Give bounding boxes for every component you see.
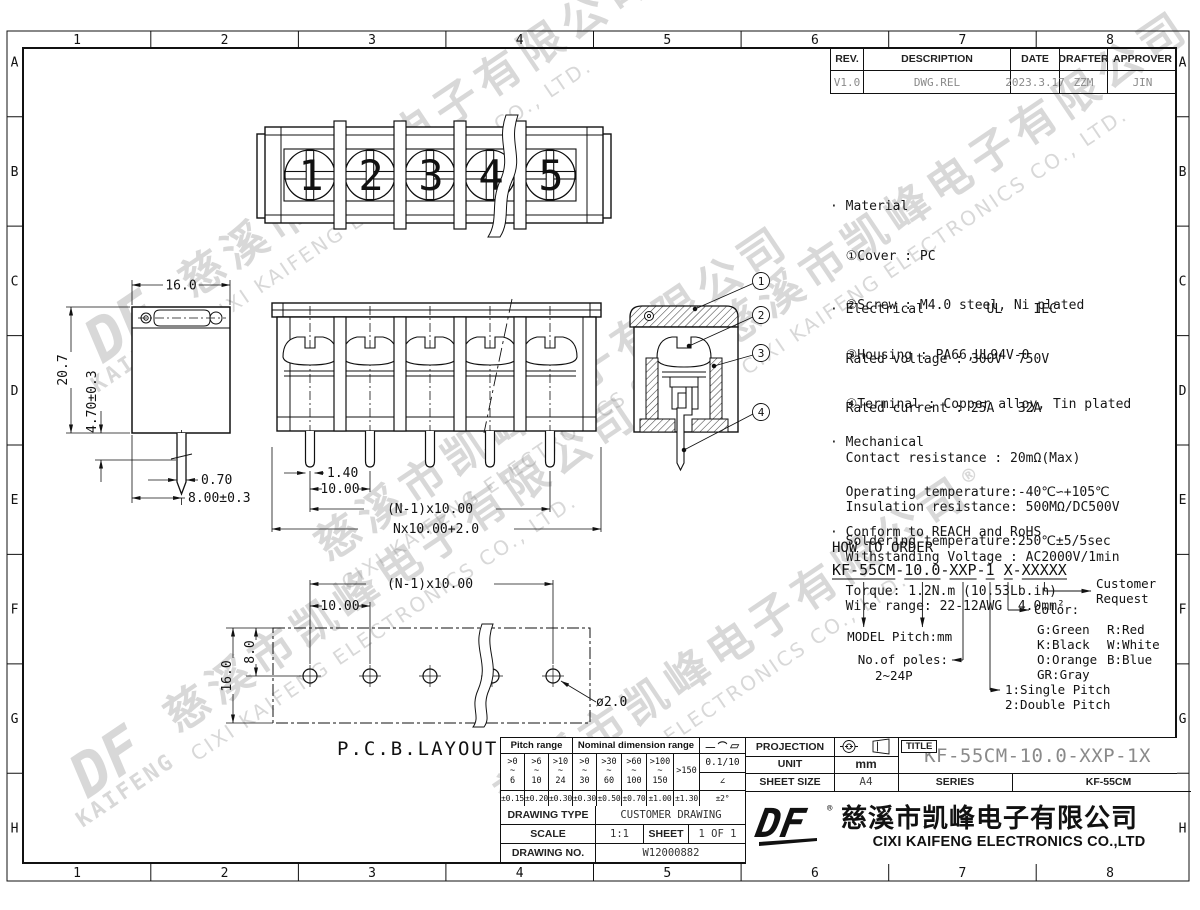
rev-value: V1.0 [831, 71, 864, 94]
kaifeng-logo-watermark: DFKAIFENG [61, 275, 194, 396]
svg-text:5: 5 [538, 151, 563, 200]
svg-text:1: 1 [758, 275, 765, 288]
svg-text:6: 6 [811, 866, 819, 881]
svg-text:8.00±0.3: 8.00±0.3 [188, 491, 251, 506]
svg-text:H: H [11, 822, 19, 837]
svg-text:O:Orange: O:Orange [1037, 652, 1097, 667]
svg-text:E: E [11, 493, 19, 508]
svg-text:1: 1 [73, 33, 81, 48]
svg-text:D: D [11, 384, 19, 399]
svg-text:6: 6 [811, 33, 819, 48]
svg-text:7: 7 [958, 33, 966, 48]
svg-text:B:Blue: B:Blue [1107, 652, 1152, 667]
svg-text:4: 4 [516, 33, 524, 48]
svg-text:G: G [1179, 712, 1187, 727]
svg-text:5: 5 [663, 866, 671, 881]
svg-text:B: B [11, 165, 19, 180]
registered-mark: ® [827, 804, 833, 814]
kaifeng-logo-watermark: DFKAIFENG [46, 710, 179, 831]
svg-text:2: 2 [758, 309, 765, 322]
svg-text:7: 7 [958, 866, 966, 881]
svg-text:3: 3 [368, 33, 376, 48]
svg-text:ø2.0: ø2.0 [596, 695, 627, 710]
company-name-en: CIXI KAIFENG ELECTRONICS CO.,LTD [841, 834, 1177, 850]
svg-text:2: 2 [358, 151, 383, 200]
svg-text:2: 2 [221, 866, 229, 881]
title-cell: TITLE KF-55CM-10.0-XXP-1X [898, 738, 1177, 774]
top-view: 1 2 3 4 5 [257, 115, 611, 237]
svg-text:GR:Gray: GR:Gray [1037, 667, 1090, 682]
svg-text:16.0: 16.0 [165, 279, 196, 294]
pcb-layout: (N-1)x10.00 10.00 8.0 16.0 ø2.0 P.C.B.LA… [220, 577, 627, 760]
svg-text:5: 5 [663, 33, 671, 48]
svg-text:(N-1)x10.00: (N-1)x10.00 [387, 577, 473, 592]
svg-text:4: 4 [516, 866, 524, 881]
svg-text:A: A [1179, 56, 1187, 71]
svg-text:A: A [11, 56, 19, 71]
tolerance-table: Pitch range Nominal dimension range — ⌒ … [500, 737, 747, 807]
svg-text:No.of poles:: No.of poles: [858, 652, 948, 667]
projection-symbol [834, 738, 899, 757]
svg-text:C: C [1179, 274, 1187, 289]
svg-text:1: 1 [298, 151, 323, 200]
svg-text:16.0: 16.0 [220, 660, 235, 691]
series-value: KF-55CM [1012, 773, 1191, 792]
svg-text:H: H [1179, 822, 1187, 837]
drawing-info-table: DRAWING TYPE CUSTOMER DRAWING SCALE 1:1 … [500, 806, 747, 863]
rev-header: REV. [831, 48, 864, 71]
pole-numbers: 1 2 3 4 5 [298, 151, 563, 200]
company-name-cn: 慈溪市凯峰电子有限公司 [841, 804, 1177, 834]
company-block: DF ® 慈溪市凯峰电子有限公司 CIXI KAIFENG ELECTRONIC… [746, 791, 1177, 865]
section-view: 1 2 3 4 [630, 273, 770, 471]
title-value: KF-55CM-10.0-XXP-1X [924, 745, 1151, 767]
svg-text:0.70: 0.70 [201, 473, 232, 488]
svg-text:2~24P: 2~24P [875, 668, 913, 683]
watermark: DFKAIFENG 慈溪市凯峰电子有限公司®CIXI KAIFENG ELECT… [55, 0, 700, 405]
svg-text:1:Single Pitch: 1:Single Pitch [1005, 682, 1110, 697]
svg-text:Nx10.00+2.0: Nx10.00+2.0 [393, 522, 479, 537]
svg-text:10.00: 10.00 [320, 599, 359, 614]
revision-table: REV. DESCRIPTION DATE DRAFTER APPROVER V… [830, 48, 1177, 94]
title-label: TITLE [901, 740, 937, 753]
callout-balloons [682, 273, 769, 452]
svg-text:C: C [11, 274, 19, 289]
svg-text:(N-1)x10.00: (N-1)x10.00 [387, 502, 473, 517]
svg-text:F: F [11, 603, 19, 618]
svg-text:8: 8 [1106, 33, 1114, 48]
kaifeng-logo: DF ® [746, 799, 841, 855]
svg-text:B: B [1179, 165, 1187, 180]
svg-text:8.0: 8.0 [243, 640, 258, 663]
unit-value: mm [834, 756, 899, 775]
geometry-symbols: — ⌒ ▱ [700, 738, 746, 754]
svg-text:1.40: 1.40 [327, 466, 358, 481]
pcb-layout-label: P.C.B.LAYOUT [337, 738, 498, 760]
svg-text:4.70±0.3: 4.70±0.3 [85, 370, 100, 433]
svg-text:3: 3 [368, 866, 376, 881]
svg-text:2:Double Pitch: 2:Double Pitch [1005, 697, 1110, 712]
svg-text:8: 8 [1106, 866, 1114, 881]
title-block: PROJECTION TITLE KF-55CM-10.0-XXP-1X UNI… [745, 737, 1177, 864]
front-view: 1.40 10.00 (N-1)x10.00 Nx10.00+2.0 [272, 299, 601, 537]
svg-text:G: G [11, 712, 19, 727]
side-view: 16.0 20.7 4.70±0.3 0.70 8.00±0.3 [56, 279, 251, 507]
svg-text:F: F [1179, 603, 1187, 618]
svg-text:20.7: 20.7 [56, 354, 71, 385]
svg-text:2: 2 [221, 33, 229, 48]
svg-text:10.00: 10.00 [320, 482, 359, 497]
svg-text:E: E [1179, 493, 1187, 508]
svg-text:4: 4 [478, 151, 503, 200]
svg-text:4: 4 [758, 406, 765, 419]
conform-note: · Conform to REACH and RoHS [830, 492, 1041, 575]
svg-text:1: 1 [73, 866, 81, 881]
svg-text:D: D [1179, 384, 1187, 399]
svg-text:3: 3 [418, 151, 443, 200]
sheet-size-value: A4 [834, 773, 899, 792]
svg-text:3: 3 [758, 347, 765, 360]
watermark: 慈溪市凯峰电子有限公司CIXI KAIFENG ELECTRONICS CO.,… [300, 206, 815, 594]
drawing-sheet: DFKAIFENG 慈溪市凯峰电子有限公司®CIXI KAIFENG ELECT… [0, 0, 1200, 910]
